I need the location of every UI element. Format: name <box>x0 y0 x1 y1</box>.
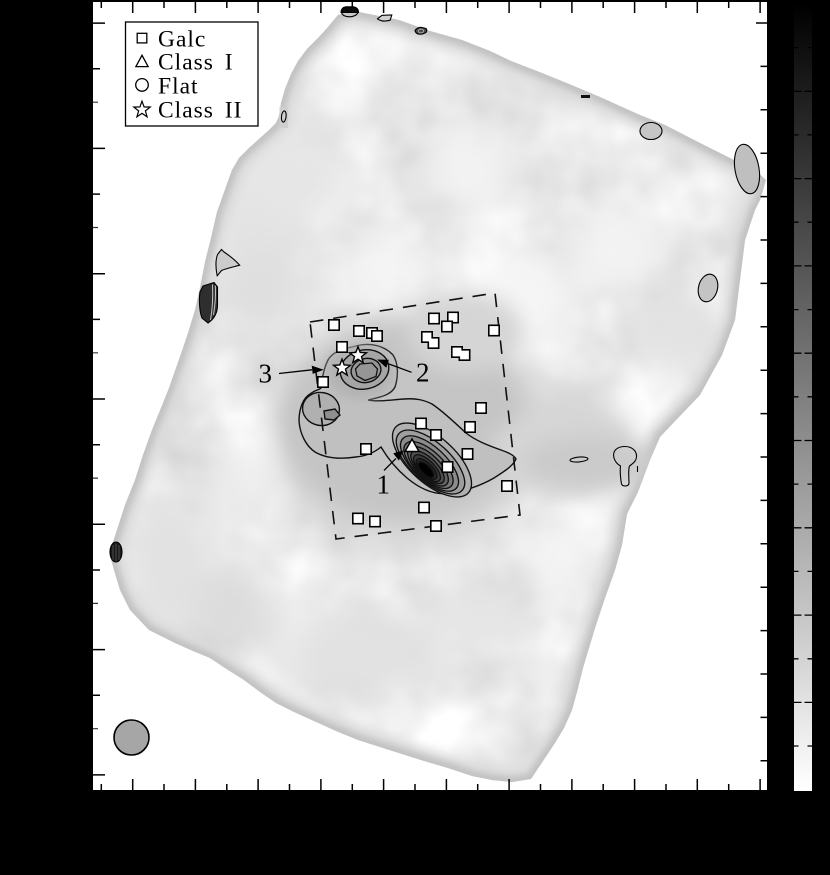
svg-text:3: 3 <box>259 359 273 389</box>
svg-text:2: 2 <box>416 358 430 388</box>
svg-text:Class II: Class II <box>158 97 242 123</box>
svg-text:1: 1 <box>377 470 391 500</box>
svg-text:Class I: Class I <box>158 49 234 75</box>
svg-text:Flat: Flat <box>158 74 199 100</box>
